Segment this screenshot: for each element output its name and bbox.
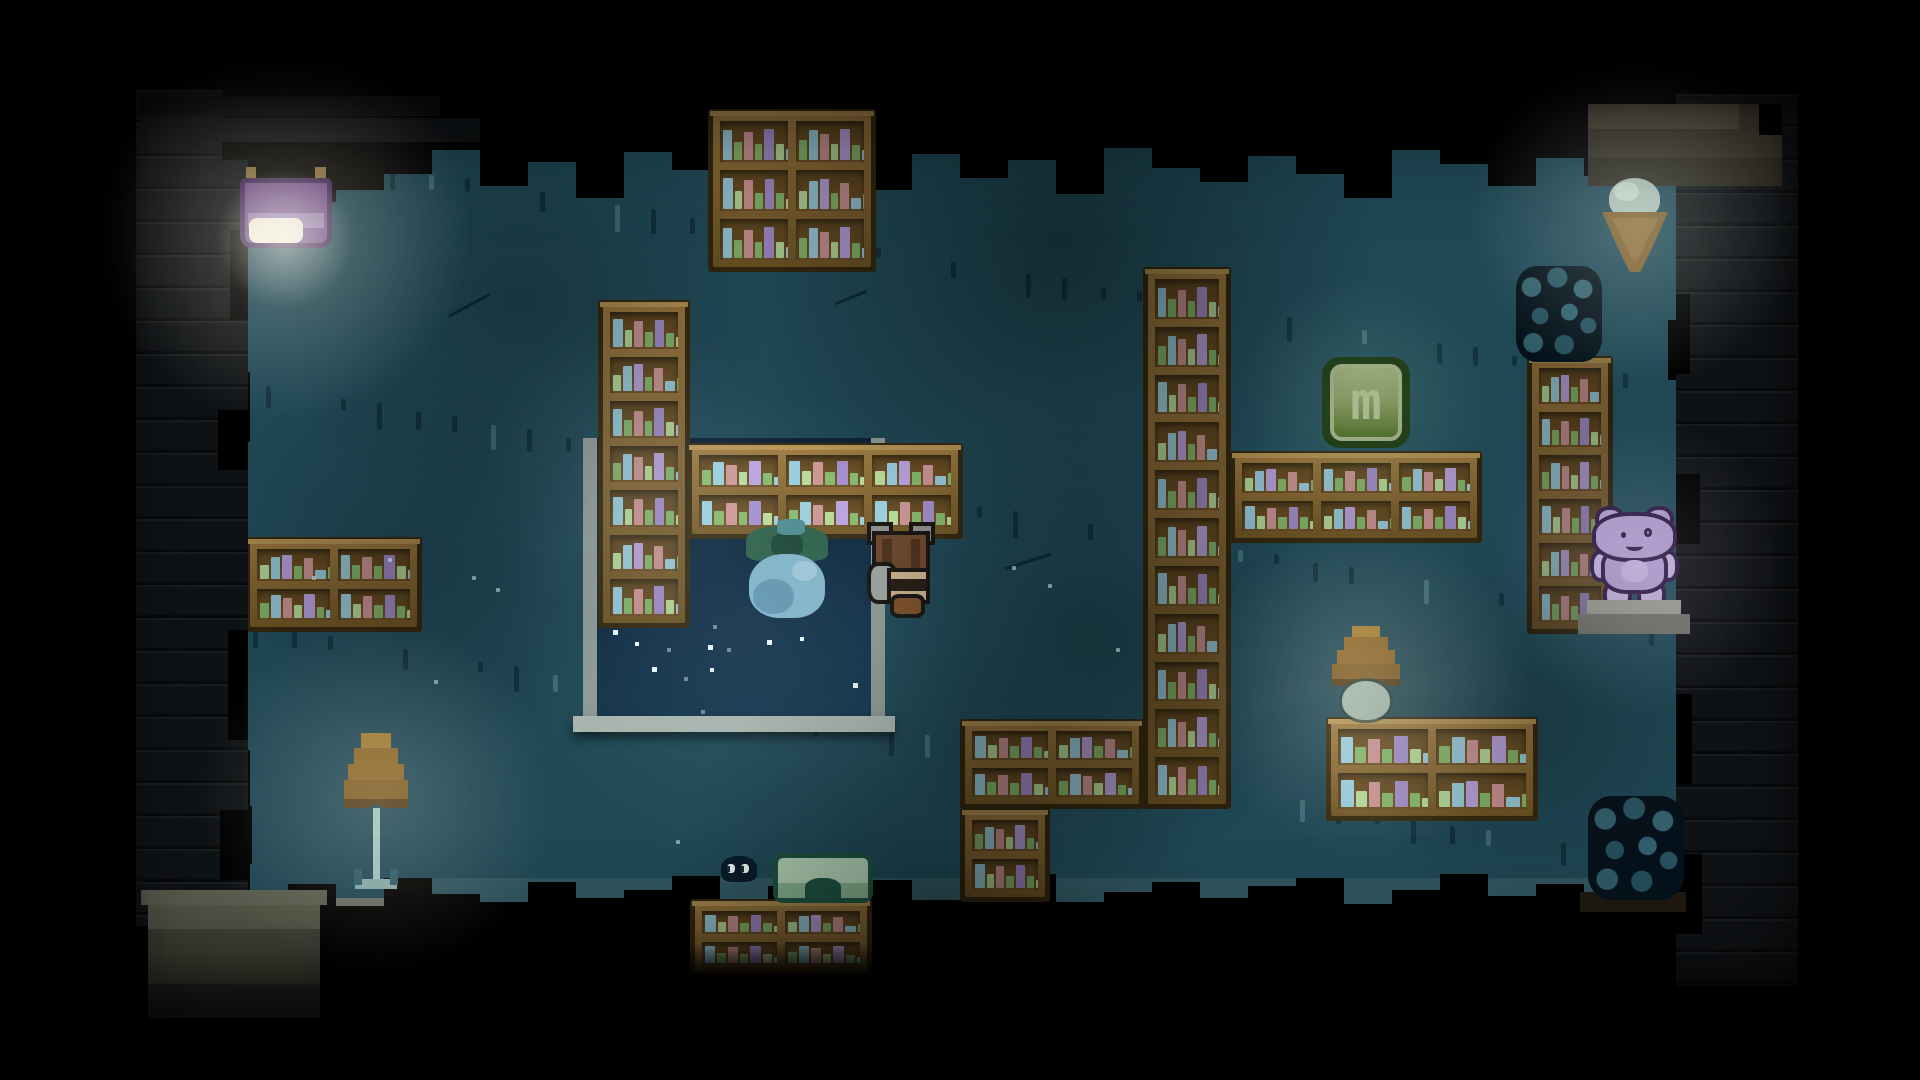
book-spine bbox=[1591, 432, 1598, 446]
capital-band bbox=[1588, 104, 1739, 129]
book-spine bbox=[1310, 521, 1313, 529]
book-row bbox=[799, 127, 861, 160]
pillar-notch bbox=[218, 410, 248, 470]
shelf-cell bbox=[702, 911, 777, 934]
hanging-cone-planter bbox=[1602, 178, 1668, 272]
book-spine bbox=[397, 566, 406, 578]
book-row bbox=[705, 914, 774, 932]
book-row bbox=[1542, 548, 1598, 577]
book-spine bbox=[1178, 339, 1186, 364]
book-spine bbox=[788, 952, 797, 963]
shelf-cell bbox=[1539, 368, 1601, 404]
book-spine bbox=[1188, 779, 1196, 795]
lampshade-step bbox=[348, 764, 404, 780]
book-spine bbox=[851, 198, 861, 209]
book-row bbox=[975, 772, 1045, 795]
shelf-cell bbox=[610, 579, 678, 616]
book-spine bbox=[1345, 471, 1355, 491]
book-spine bbox=[341, 594, 352, 618]
book-spine bbox=[1299, 483, 1309, 491]
book-spine bbox=[900, 502, 910, 525]
book-spine bbox=[755, 242, 762, 258]
book-spine bbox=[1402, 477, 1410, 491]
book-spine bbox=[1218, 402, 1220, 412]
book-spine bbox=[1197, 287, 1206, 317]
book-spine bbox=[1255, 471, 1264, 491]
wall-edge-notch bbox=[1584, 900, 1632, 1080]
shelf-cell bbox=[1321, 463, 1392, 493]
book-spine bbox=[1452, 737, 1465, 763]
game-viewport[interactable]: m bbox=[0, 0, 1920, 1080]
plank-dash bbox=[1101, 287, 1106, 300]
book-spine bbox=[634, 543, 643, 570]
book-spine bbox=[645, 555, 652, 570]
pillar-notch bbox=[1676, 694, 1692, 784]
book-row bbox=[613, 585, 675, 614]
book-spine bbox=[862, 248, 864, 258]
wall-edge-notch bbox=[576, 140, 624, 198]
bookshelf-right-column bbox=[1143, 267, 1231, 809]
book-spine bbox=[294, 605, 302, 618]
plank-dash bbox=[491, 425, 496, 450]
book-spine bbox=[1289, 507, 1299, 529]
book-spine bbox=[1059, 745, 1068, 758]
book-spine bbox=[1178, 481, 1187, 508]
pedestal-base bbox=[1578, 614, 1690, 634]
book-spine bbox=[1492, 736, 1505, 763]
book-spine bbox=[666, 333, 673, 347]
book-row bbox=[1245, 467, 1310, 491]
book-spine bbox=[1257, 516, 1265, 529]
book-spine bbox=[744, 180, 753, 209]
book-spine bbox=[1551, 552, 1559, 576]
book-spine bbox=[850, 473, 859, 485]
book-spine bbox=[734, 142, 742, 160]
book-spine bbox=[728, 947, 738, 963]
shelf-cell bbox=[1155, 327, 1219, 367]
shelf-cell bbox=[1436, 729, 1526, 765]
book-spine bbox=[1168, 527, 1177, 556]
book-spine bbox=[714, 511, 723, 525]
book-spine bbox=[1188, 540, 1195, 556]
book-spine bbox=[1209, 397, 1216, 412]
plank-dash bbox=[615, 205, 620, 232]
wall-edge-notch bbox=[1008, 140, 1056, 160]
book-spine bbox=[1158, 346, 1166, 365]
book-spine bbox=[1021, 773, 1032, 795]
small-bat-sprite bbox=[721, 856, 757, 882]
lampshade-step bbox=[1337, 650, 1396, 663]
book-spine bbox=[363, 596, 372, 618]
book-row bbox=[723, 127, 785, 160]
book-spine bbox=[666, 467, 673, 480]
book-spine bbox=[1188, 683, 1195, 699]
book-spine bbox=[1188, 397, 1196, 413]
book-spine bbox=[975, 736, 986, 758]
book-spine bbox=[1188, 349, 1195, 365]
right-pillar bbox=[1676, 94, 1798, 986]
shelf-cell bbox=[1321, 501, 1392, 531]
wall-edge-notch bbox=[528, 882, 576, 1080]
wall-edge-notch bbox=[1488, 896, 1536, 1080]
bookshelf-bottom-arm bbox=[960, 719, 1144, 809]
book-spine bbox=[1542, 472, 1549, 489]
book-spine bbox=[776, 193, 783, 209]
wall-edge-notch bbox=[432, 894, 480, 1080]
book-spine bbox=[1245, 506, 1255, 529]
plant-slime-sprite bbox=[746, 526, 828, 618]
book-spine bbox=[811, 948, 821, 963]
book-spine bbox=[728, 916, 738, 932]
book-spine bbox=[1522, 794, 1526, 807]
book-spine bbox=[1036, 880, 1038, 888]
book-spine bbox=[809, 181, 818, 209]
book-spine bbox=[1218, 594, 1220, 604]
book-spine bbox=[385, 595, 395, 618]
book-spine bbox=[1542, 386, 1549, 402]
book-spine bbox=[1188, 588, 1196, 604]
book-spine bbox=[374, 566, 382, 579]
teddy-pedestal bbox=[1578, 600, 1690, 634]
book-spine bbox=[1188, 636, 1195, 652]
book-spine bbox=[755, 193, 763, 209]
book-spine bbox=[654, 546, 663, 569]
book-spine bbox=[677, 556, 678, 569]
book-spine bbox=[702, 501, 712, 525]
book-spine bbox=[1288, 472, 1297, 491]
book-spine bbox=[912, 512, 921, 525]
book-spine bbox=[776, 144, 784, 160]
book-spine bbox=[702, 470, 711, 485]
bookshelf-center-arm bbox=[687, 443, 963, 539]
book-spine bbox=[645, 421, 652, 436]
book-spine bbox=[723, 228, 732, 258]
star bbox=[613, 630, 618, 635]
book-spine bbox=[1006, 876, 1014, 888]
plank-dash bbox=[1512, 356, 1517, 366]
book-spine bbox=[271, 557, 280, 578]
wall-edge-notch bbox=[336, 906, 384, 1080]
shelf-body bbox=[1331, 722, 1533, 816]
book-spine bbox=[936, 513, 945, 525]
book-spine bbox=[1435, 479, 1443, 491]
planter-cone bbox=[1602, 212, 1668, 272]
book-spine bbox=[1117, 750, 1128, 758]
book-spine bbox=[875, 471, 884, 485]
book-spine bbox=[1561, 550, 1569, 576]
book-spine bbox=[831, 193, 838, 209]
book-spine bbox=[1158, 443, 1166, 461]
bookshelf-left bbox=[245, 537, 422, 632]
book-spine bbox=[1581, 506, 1589, 532]
planter-cone-inner bbox=[1611, 218, 1659, 260]
shelf-body bbox=[965, 813, 1045, 897]
base-band bbox=[148, 905, 320, 929]
shelf-cell bbox=[610, 401, 678, 438]
book-spine bbox=[666, 422, 674, 436]
shelf-cell bbox=[785, 942, 860, 965]
book-spine bbox=[1218, 785, 1220, 795]
book-spine bbox=[1218, 497, 1219, 508]
dark-bush-bottom-right bbox=[1588, 796, 1684, 900]
book-spine bbox=[1445, 468, 1455, 491]
wall-edge-notch bbox=[1344, 904, 1392, 1080]
star bbox=[652, 667, 657, 672]
book-spine bbox=[1207, 641, 1216, 652]
book-spine bbox=[887, 463, 897, 485]
book-spine bbox=[362, 557, 372, 578]
book-row bbox=[1402, 467, 1467, 491]
wall-edge-notch bbox=[1104, 892, 1152, 1080]
book-spine bbox=[751, 915, 761, 932]
book-spine bbox=[857, 957, 860, 963]
book-spine bbox=[833, 946, 844, 963]
book-spine bbox=[1402, 507, 1411, 529]
book-row bbox=[1542, 504, 1598, 533]
book-spine bbox=[1178, 431, 1187, 460]
book-spine bbox=[613, 497, 623, 525]
shelf-cell bbox=[610, 535, 678, 572]
book-spine bbox=[788, 922, 797, 932]
book-spine bbox=[763, 513, 772, 525]
book-spine bbox=[1070, 738, 1080, 758]
book-spine bbox=[1439, 791, 1450, 807]
shelf-cell bbox=[610, 446, 678, 483]
lamp-stem bbox=[373, 808, 381, 879]
bat-pupil bbox=[727, 866, 731, 872]
book-spine bbox=[809, 130, 818, 160]
plank-dash bbox=[1300, 800, 1305, 822]
book-spine bbox=[833, 917, 843, 932]
book-spine bbox=[260, 603, 269, 618]
sign-face: m bbox=[1330, 364, 1402, 440]
book-spine bbox=[1562, 466, 1570, 489]
book-spine bbox=[1169, 395, 1176, 413]
shelf-body bbox=[695, 904, 867, 972]
book-spine bbox=[1197, 717, 1206, 747]
book-spine bbox=[623, 366, 632, 391]
book-row bbox=[723, 225, 785, 258]
dust-speck bbox=[388, 558, 392, 562]
book-spine bbox=[625, 330, 632, 346]
book-row bbox=[1158, 381, 1216, 413]
book-row bbox=[613, 451, 675, 480]
book-spine bbox=[996, 829, 1004, 849]
book-spine bbox=[1218, 738, 1220, 748]
book-spine bbox=[294, 566, 302, 579]
book-spine bbox=[1278, 479, 1286, 491]
book-row bbox=[975, 735, 1045, 758]
book-spine bbox=[1197, 435, 1205, 460]
book-row bbox=[875, 459, 948, 485]
book-spine bbox=[1572, 518, 1579, 532]
book-spine bbox=[1197, 478, 1206, 508]
star bbox=[713, 625, 717, 629]
book-row bbox=[799, 225, 861, 258]
book-spine bbox=[744, 230, 753, 258]
shelf-cell bbox=[1155, 757, 1219, 797]
plank-dash bbox=[1287, 317, 1292, 342]
dust-speck bbox=[472, 576, 476, 580]
shelf-cell bbox=[1155, 422, 1219, 462]
shelf-body bbox=[250, 542, 417, 627]
book-row bbox=[702, 499, 775, 525]
wall-edge-notch bbox=[912, 140, 960, 154]
book-spine bbox=[740, 923, 749, 932]
wall-edge-notch bbox=[1200, 140, 1248, 182]
dust-speck bbox=[676, 840, 680, 844]
shelf-cell bbox=[1242, 501, 1313, 531]
book-spine bbox=[1015, 825, 1025, 849]
base-band bbox=[162, 929, 306, 984]
planter-plant-highlight bbox=[1614, 182, 1639, 201]
wall-edge-notch bbox=[1200, 898, 1248, 1080]
shelf-cell bbox=[720, 170, 788, 211]
book-spine bbox=[763, 954, 772, 963]
book-spine bbox=[623, 545, 632, 570]
book-spine bbox=[1036, 842, 1038, 849]
book-spine bbox=[1178, 384, 1186, 412]
book-row bbox=[341, 553, 408, 578]
book-spine bbox=[1379, 479, 1387, 491]
bat-pupil bbox=[741, 866, 745, 872]
shelf-cell bbox=[1399, 501, 1470, 531]
chair-arch bbox=[805, 878, 841, 898]
slime-highlight bbox=[792, 561, 817, 581]
shelf-cell bbox=[1338, 729, 1428, 765]
book-spine bbox=[634, 364, 643, 391]
lampshade-step bbox=[1344, 637, 1389, 650]
wall-edge-notch bbox=[480, 140, 528, 186]
book-spine bbox=[1355, 747, 1366, 763]
book-spine bbox=[749, 461, 761, 485]
book-spine bbox=[1188, 301, 1195, 317]
star bbox=[710, 668, 714, 672]
book-row bbox=[788, 945, 857, 963]
book-spine bbox=[1168, 336, 1177, 365]
book-spine bbox=[1562, 508, 1570, 533]
shelf-body bbox=[965, 724, 1139, 804]
plank-dash bbox=[889, 731, 894, 756]
book-spine bbox=[1422, 798, 1428, 807]
bottom-left-base bbox=[148, 896, 320, 1018]
book-spine bbox=[1458, 480, 1466, 491]
book-spine bbox=[397, 606, 405, 618]
book-spine bbox=[860, 477, 864, 485]
star bbox=[727, 648, 731, 652]
teddy-belly bbox=[1621, 560, 1648, 582]
book-spine bbox=[1128, 788, 1132, 795]
plank-dash bbox=[1088, 524, 1093, 540]
book-spine bbox=[1357, 517, 1365, 529]
book-spine bbox=[271, 595, 281, 618]
book-spine bbox=[1466, 781, 1479, 807]
book-row bbox=[1324, 505, 1389, 529]
book-spine bbox=[774, 477, 778, 485]
wall-edge-notch bbox=[1152, 882, 1200, 1080]
book-spine bbox=[1445, 506, 1455, 529]
book-spine bbox=[845, 926, 856, 932]
shelf-cell bbox=[1399, 463, 1470, 493]
book-row bbox=[1059, 772, 1129, 795]
slime-cap bbox=[777, 519, 805, 536]
book-spine bbox=[645, 377, 652, 392]
shelf-cell bbox=[796, 170, 864, 211]
book-spine bbox=[315, 570, 326, 579]
book-spine bbox=[863, 194, 864, 209]
book-spine bbox=[1561, 596, 1569, 620]
book-spine bbox=[786, 199, 788, 209]
floor-lamp bbox=[341, 733, 411, 895]
book-spine bbox=[1266, 469, 1276, 491]
book-spine bbox=[1027, 876, 1034, 888]
book-spine bbox=[836, 501, 848, 525]
book-row bbox=[1439, 734, 1523, 763]
book-spine bbox=[1178, 767, 1186, 795]
wall-edge-notch bbox=[1296, 140, 1344, 174]
star bbox=[684, 677, 688, 681]
book-spine bbox=[764, 227, 774, 258]
book-spine bbox=[1034, 784, 1043, 795]
pillar-notch bbox=[220, 810, 248, 880]
capital-notch bbox=[1759, 104, 1782, 135]
book-row bbox=[613, 317, 675, 346]
wall-edge-notch bbox=[1440, 874, 1488, 1080]
shelf-cell bbox=[257, 589, 330, 621]
book-spine bbox=[789, 461, 801, 485]
book-spine bbox=[624, 598, 632, 614]
shelf-body bbox=[692, 448, 958, 534]
book-spine bbox=[1006, 837, 1013, 849]
book-spine bbox=[1168, 719, 1177, 748]
book-spine bbox=[676, 515, 678, 524]
book-spine bbox=[1542, 506, 1551, 533]
star bbox=[635, 642, 639, 646]
book-spine bbox=[1209, 542, 1216, 556]
book-row bbox=[975, 824, 1035, 849]
book-row bbox=[788, 914, 857, 932]
plank-dash bbox=[1013, 511, 1018, 538]
plank-dash bbox=[514, 666, 519, 692]
book-spine bbox=[1395, 781, 1408, 807]
shelf-cell bbox=[610, 312, 678, 349]
plank-dash bbox=[465, 179, 470, 192]
book-spine bbox=[1458, 517, 1466, 529]
book-spine bbox=[1423, 753, 1428, 763]
book-spine bbox=[1492, 784, 1504, 807]
book-spine bbox=[840, 129, 850, 160]
book-spine bbox=[1105, 739, 1115, 758]
book-spine bbox=[1197, 334, 1206, 364]
book-spine bbox=[776, 242, 784, 258]
book-row bbox=[799, 176, 861, 209]
book-spine bbox=[1158, 573, 1167, 603]
plank-dash bbox=[1473, 347, 1478, 366]
star bbox=[701, 710, 705, 714]
book-spine bbox=[923, 501, 934, 525]
table-lamp bbox=[1331, 626, 1401, 720]
plank-dash bbox=[341, 399, 346, 410]
plank-dash bbox=[925, 735, 930, 758]
book-spine bbox=[623, 454, 632, 480]
book-spine bbox=[1367, 468, 1377, 491]
shelf-cell bbox=[1242, 463, 1313, 493]
dust-speck bbox=[1116, 648, 1120, 652]
shelf-cell bbox=[872, 495, 951, 527]
book-spine bbox=[1580, 462, 1589, 489]
book-spine bbox=[1357, 479, 1365, 491]
book-spine bbox=[860, 517, 864, 525]
